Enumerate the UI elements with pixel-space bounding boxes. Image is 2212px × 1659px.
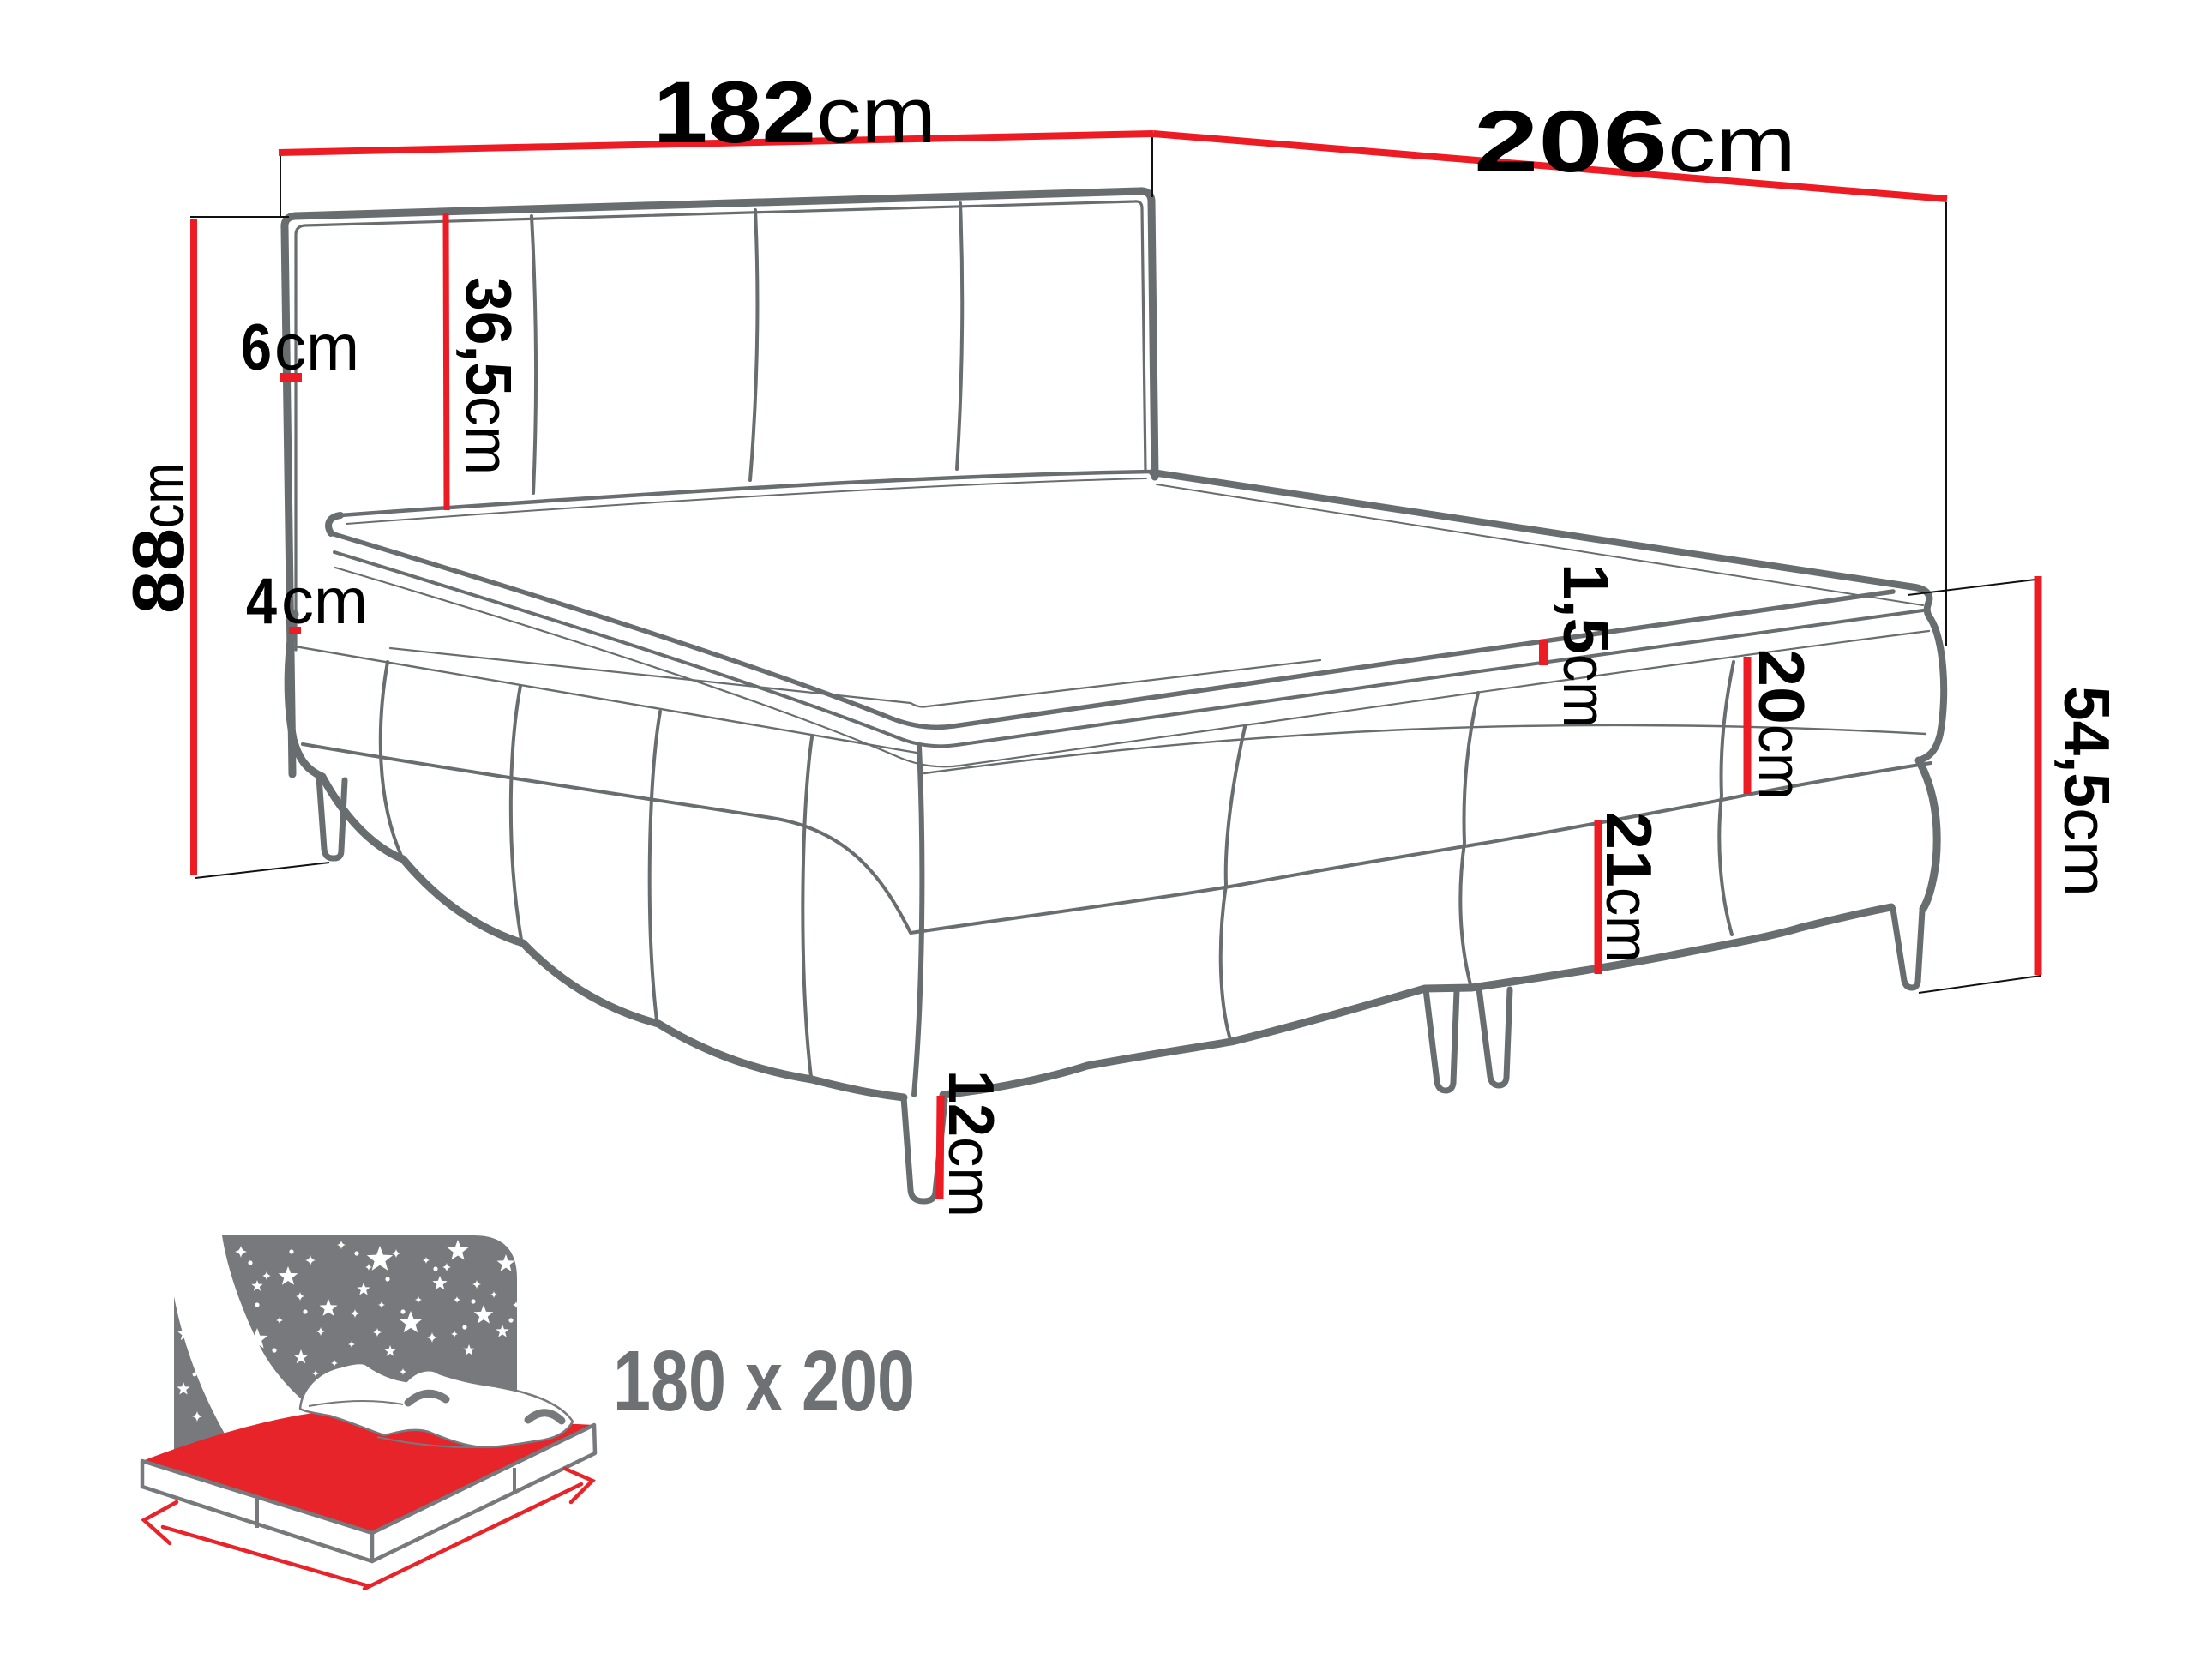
svg-text:36,5cm: 36,5cm [453,277,525,475]
svg-text:182cm: 182cm [653,63,936,161]
svg-text:88cm: 88cm [118,463,200,614]
svg-text:180 x 200: 180 x 200 [613,1333,915,1429]
svg-text:54,5cm: 54,5cm [2051,686,2123,897]
svg-text:20cm: 20cm [1746,649,1818,800]
svg-text:21cm: 21cm [1593,812,1665,963]
svg-text:12cm: 12cm [935,1070,1007,1217]
svg-text:206cm: 206cm [1474,93,1796,190]
svg-text:6cm: 6cm [241,311,359,384]
svg-text:1,5cm: 1,5cm [1550,563,1622,728]
svg-text:4cm: 4cm [246,565,368,638]
